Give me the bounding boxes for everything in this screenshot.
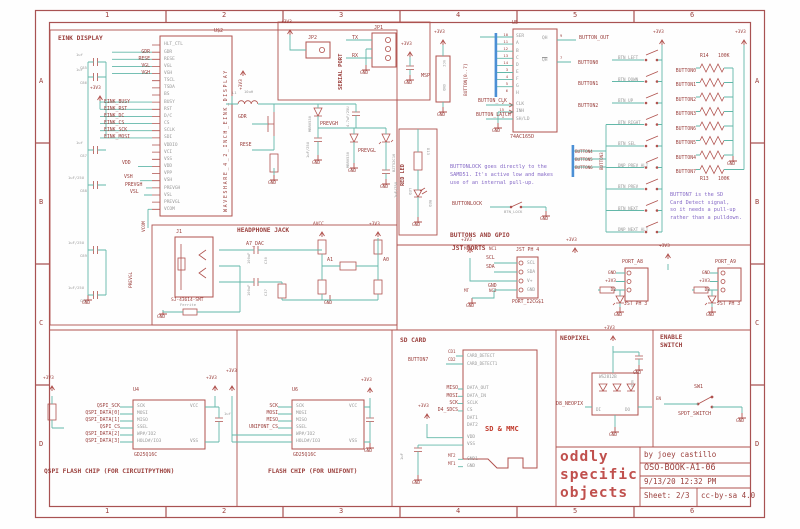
gpio-pin-numbers: 10 11 12 13 14 3 4 5 6 [498,31,508,95]
qspi-pin-names: SCK MOSI MISO SSEL WP#/IO2 HOLD#/IO3 [137,403,161,445]
gnd-label: GND [157,316,165,321]
array-net-labels: BUTTON0 BUTTON1 BUTTON2 BUTTON3 BUTTON6 … [658,65,696,181]
cap-name: C88 [80,189,87,193]
net-label-button-out: BUTTON_OUT [579,36,609,42]
port-a9-refdes: PORT_A9 [715,260,736,266]
gnd-label: GND [348,170,356,175]
button-bus-bar [495,33,498,97]
cap-c30-value: 100uF [247,253,251,264]
inductor-value: 10uH [244,90,253,94]
row-label: B [39,199,43,207]
gpio-refdes: U5 [512,21,518,27]
net-label-button7-sd: BUTTON7 [408,358,428,363]
gnd-label: GND [268,182,276,187]
button7-note: BUTTON7 is the SD Card Detect signal, so… [670,192,742,222]
col-label: 2 [222,12,226,20]
zener-name: BZT52C16 [392,154,396,172]
v33-vert-label: +3V3 [240,79,245,90]
gpio-pin-names: SER A B C D E F G H [516,33,524,97]
qspi-device: GD25Q16C [134,453,157,458]
headphone-resistors [374,280,382,294]
section-title-headphone: HEADPHONE JACK [237,228,289,235]
net-label-rx: RX [352,54,358,60]
unifont-vss: VSS [349,440,357,445]
jack-refdes: J1 [176,230,182,236]
i2c-type: JST PH 4 [516,248,539,253]
cap-c37-value: 100uF [247,285,251,296]
eink-refdes: U$2 [214,29,223,35]
unifont-refdes: U6 [292,388,298,394]
net-label-cd2: CD2 [448,358,456,363]
qspi-refdes: U4 [133,388,139,394]
row-label: B [755,199,759,207]
eink-net-labels-spi: EINK_BUSY EINK_RST EINK_DC EINK_CS EINK_… [104,99,130,142]
gnd-label: GND [412,224,420,229]
net-label-d8-neopix: D8_NEOPIX [556,402,583,408]
sheet-value: 2/3 [676,492,690,500]
i2c-pads [519,288,523,292]
i2c-nc2: NC2 [489,289,497,294]
sd-net-labels: MISO MOSI SCK D4_SDCS [420,385,458,414]
logo-line-1: oddly [560,450,609,466]
neopixel-di: DI [596,408,601,413]
boost-wires [226,96,386,179]
schematic-sheet: 1 2 3 4 5 6 1 2 3 4 5 6 A B C D A B C D … [0,0,800,529]
ferrite-label: Ferrite [180,303,196,307]
col-label: 3 [339,12,343,20]
gnd-label: GND [437,114,445,119]
cap-value: 1uf [76,53,83,57]
net-label-button-clk: BUTTON_CLK [478,99,507,104]
row-label: C [39,320,43,328]
cap-prevgh [314,138,322,142]
inductor-l1 [238,101,258,104]
v33-label: +3V3 [281,21,292,26]
array-wires [696,45,744,170]
gpio-ctl-pin-names: CLK INH SH/LD [516,101,530,122]
msp-label: MSP [421,74,430,80]
col-label: 1 [105,12,109,20]
cap-value-prevgh: 1uF/25U [306,142,310,158]
section-title-neopixel: NEOPIXEL [560,336,590,343]
jp2-outline [306,42,330,58]
cap-c30-name: C30 [264,257,268,264]
section-title-serial: SERIAL PORT [338,54,344,90]
redled-led-label: LED [408,188,412,195]
gnd-label: GND [466,305,474,310]
v33-label: +3V3 [206,377,217,382]
msp-cap [406,66,414,70]
i2c-mt1: MT [464,247,469,252]
gnd-label: GND [540,218,548,223]
gnd-label: GND [706,314,714,319]
cap-value: 1uF/25U [68,286,84,290]
sd-gnd-pin-names: GND1 GND [467,456,478,471]
port-a8-outline [625,268,648,301]
cap-value-prevgl: 1uF/25U [394,182,398,198]
jp1-outline [372,33,396,67]
mosfet-q [268,112,274,136]
v33-label: +3V3 [43,377,54,382]
button-bus-nets: BUTTON4 BUTTON5 BUTTON6 [575,148,593,172]
v33-label: +3V3 [361,379,372,384]
net-label-prevgl: PREVGL [130,272,135,288]
net-label-mt2: MT2 [448,454,456,459]
document-number: OSO-BOOK-A1-06 [644,464,716,473]
port-a8-nets: GND +3V3 D2 [584,270,616,296]
cap-name: C87 [80,154,87,158]
net-label-gdr: GDR [238,115,247,120]
unifont-caption: FLASH CHIP (FOR UNIFONT) [268,469,357,476]
red-led [414,188,427,197]
sd-cap [414,448,422,452]
row-label: C [755,320,759,328]
buttonlock-switch-name: BTN_LOCK [504,210,522,214]
i2c-mt2: MT [464,289,469,294]
v33-label: +3V3 [418,405,429,410]
sd-cd-pin-names: CARD_DETECT CARD_DETECT1 [467,352,497,368]
ferrite-bead [183,309,197,315]
cap-name: C89 [80,254,87,258]
logo-line-2: specific [560,468,638,484]
qspi-vcc: VCC [190,405,198,410]
jp1-pads [385,55,390,60]
unifont-net-labels: SCK MOSI MISO UNIFONT_CS [222,403,278,431]
sheet-label: Sheet: [644,492,671,500]
row-label: D [755,441,759,449]
eink-caps [94,58,98,299]
qspi-net-labels: QSPI_SCK QSPI_DATA[0] QSPI_DATA[1] QSPI_… [64,403,120,445]
row-label: A [39,78,43,86]
sd-wires [418,356,463,475]
net-label-buttonlock: BUTTONLOCK [452,202,482,208]
v33-label: +3V3 [653,31,664,36]
redled-refdes: D13 [426,148,430,155]
diode-d2 [350,134,358,142]
net-label-a0: A0 [383,258,389,264]
switch-lever [698,397,711,404]
sw1-device: SPDT_SWITCH [678,412,711,418]
gnd-label: GND [412,482,420,487]
cap-47uf [352,112,360,116]
col-label: 2 [222,508,226,516]
v33-label: +3V3 [369,223,380,228]
net-label-vcom: VCOM [143,221,148,232]
jp2-pad [319,47,324,52]
neopixel-do: DO [625,408,630,413]
unifont-device: GD25Q16C [293,453,316,458]
r13-refdes: R13 [700,177,709,182]
redled-resistor [414,152,422,170]
sd-pwr-pin-names: VDD VSS [467,434,475,449]
author: by joey castillo [644,451,716,459]
gpio-qhn-num: 7 [560,56,562,60]
gnd-label: GND [492,130,500,135]
jp1-refdes: JP1 [374,26,383,32]
net-label-button-latch: BUTTON_LATCH [476,113,511,118]
button-nets-left: BUTTON0 BUTTON1 BUTTON2 [578,53,598,118]
col-label: 3 [339,508,343,516]
net-label-button3: BUTTON3 [600,152,605,170]
neopixel-device: WS2812B [599,375,617,380]
sw1-refdes: SW1 [694,385,703,391]
gnd-label: GND [364,450,372,455]
section-title-eink: EINK DISPLAY [58,36,103,43]
port-a9-outline [718,268,741,301]
eink-device-name: WAVESHARE_4_2_INCH_EINK_DISPLAY [224,69,230,212]
sd-cap-value: 1uF [400,453,404,460]
buttonlock-note: BUTTONLOCK goes directly to the SAMD51. … [450,164,553,187]
gpio-device: 74AC165D [510,135,534,141]
i2c-nc1: NC1 [489,247,497,252]
button-switch-names: BTN_LEFT BTN_DOWN BTN_UP BTN_RIGHT BTN_S… [618,47,648,241]
r13-value: 100K [718,177,730,182]
diode-d1 [314,108,322,116]
col-label: 4 [456,12,460,20]
port-a9-type: JST PH 3 [717,302,740,307]
gpio-qh-bar: QH [542,59,547,64]
v33-label: +3V3 [90,87,101,92]
v33-label: +3V3 [566,239,577,244]
msp-vcc: VCC [442,60,446,67]
cap-name: C86 [80,81,87,85]
net-label-prevgh: PREVGH [125,183,142,188]
avcc-label: AVCC [313,223,324,228]
v33-label: +3V3 [226,370,237,375]
row-label: A [755,78,759,86]
net-label-tx: TX [352,36,358,42]
cap-value: 1uF/25U [68,241,84,245]
date-stamp: 9/13/20 12:32 PM [644,478,716,486]
net-label-en: EN [656,397,661,402]
col-label: 1 [105,508,109,516]
net-label-vdd: VDD [122,161,131,166]
port-a9-nets: GND +3V3 D3 [678,270,710,296]
eink-pin-stubs [152,45,160,209]
i2c-pin-names: SCL SDA V+ GND [527,259,535,295]
col-label: 6 [690,12,694,20]
bus-label: BUTTON[0..7] [465,63,470,96]
jp2-refdes: JP2 [308,36,317,42]
gnd-label: GND [614,314,622,319]
a9-pads [721,288,725,292]
cap-value: 1uF/25U [68,176,84,180]
r14-refdes: R14 [700,54,709,59]
col-label: 4 [456,508,460,516]
net-label-a1: A1 [327,258,333,264]
net-label-scl: SCL [486,256,495,261]
section-title-redled: RED LED [401,164,407,186]
net-label-vsl: VSL [130,190,139,195]
cap-value: 1uf [76,68,83,72]
col-label: 5 [573,508,577,516]
port-a8-type: JST PH 3 [624,302,647,307]
port-a8-refdes: PORT_A8 [622,260,643,266]
cap-value-47: 4.7uF/25U [346,106,350,127]
inductor-labels: L1 [232,90,237,95]
v33-label: +3V3 [401,43,412,48]
gnd-label: GND [82,302,90,307]
diode-name-d2: MBR0530 [346,152,350,168]
col-label: 6 [690,508,694,516]
gpio-qh: QH [542,37,547,42]
button-bus-bar-2 [572,145,575,177]
gnd-label: GND [360,72,368,77]
neopixel-cap [635,356,643,359]
net-label-prevgl2: PREVGL [358,149,376,155]
unifont-pin-names: SCK MOSI MISO SSEL WP#/IO2 HOLD#/IO3 [296,403,320,445]
diode-name-d1: MBR0530 [308,116,312,132]
r14-value: 100K [718,54,730,59]
sd-device-label: SD & MMC [485,426,519,434]
v33-label: +3V3 [461,239,472,244]
net-label-vsh: VSH [124,175,133,180]
gnd-label: GND [404,82,412,87]
section-title-sd: SD CARD [400,338,426,345]
net-label-mt1: MT1 [448,462,456,467]
license: cc-by-sa 4.0 [701,492,755,500]
net-label-a7-dac: A7_DAC [246,242,264,248]
qspi-caption: QSPI FLASH CHIP (FOR CIRCUITPYTHON) [44,469,174,476]
gnd-label: GND [736,420,744,425]
section-title-enable: ENABLE SWITCH [660,334,682,350]
unifont-vcc: VCC [349,405,357,410]
msp-gnd: GND [442,84,446,91]
cap-c37-name: C37 [264,289,268,296]
sd-data-pin-names: DATA_OUT DATA_IN SCLK CS DAT1 DAT2 [467,385,489,429]
gnd-label: GND [324,302,332,307]
net-label-prevgh2: PREVGH [320,122,338,128]
i2c-refdes: PORT_I2CG$1 [512,300,544,305]
gnd-label: GND [609,434,617,439]
col-label: 5 [573,12,577,20]
gpio-qh-num: 9 [560,34,562,38]
v33-label: +3V3 [735,31,746,36]
pullup-resistor-array [700,64,724,174]
gnd-label: GND [312,162,320,167]
logo-line-3: objects [560,486,628,502]
v33-label: +3V3 [659,245,670,250]
qspi-vss: VSS [190,440,198,445]
gnd-label: GND [727,163,735,168]
v33-label: +3V3 [604,327,615,332]
net-label-sda: SDA [486,265,495,270]
gnd-label: GND [633,372,641,377]
row-label: D [39,441,43,449]
a8-pads [627,288,631,292]
redled-color-label: RED [428,200,432,207]
headphone-caps [254,246,258,286]
eink-net-labels-top: GDR RESE VGL VGH [104,49,150,78]
section-title-gpio: BUTTONS AND GPIO [450,233,510,240]
net-label-cd1: CD1 [448,350,456,355]
v33-label: +3V3 [434,31,445,36]
eink-pin-names: HLT_CTL GDR RESE VGL VGH TSCL TSDA BS BU… [164,41,183,213]
net-label-rese: RESE [240,143,252,148]
gnd-label: GND [380,186,388,191]
neopixel-vdd: VDD [630,380,634,387]
cap-value: 1uf [76,141,83,145]
cap-prevgl [382,170,390,174]
